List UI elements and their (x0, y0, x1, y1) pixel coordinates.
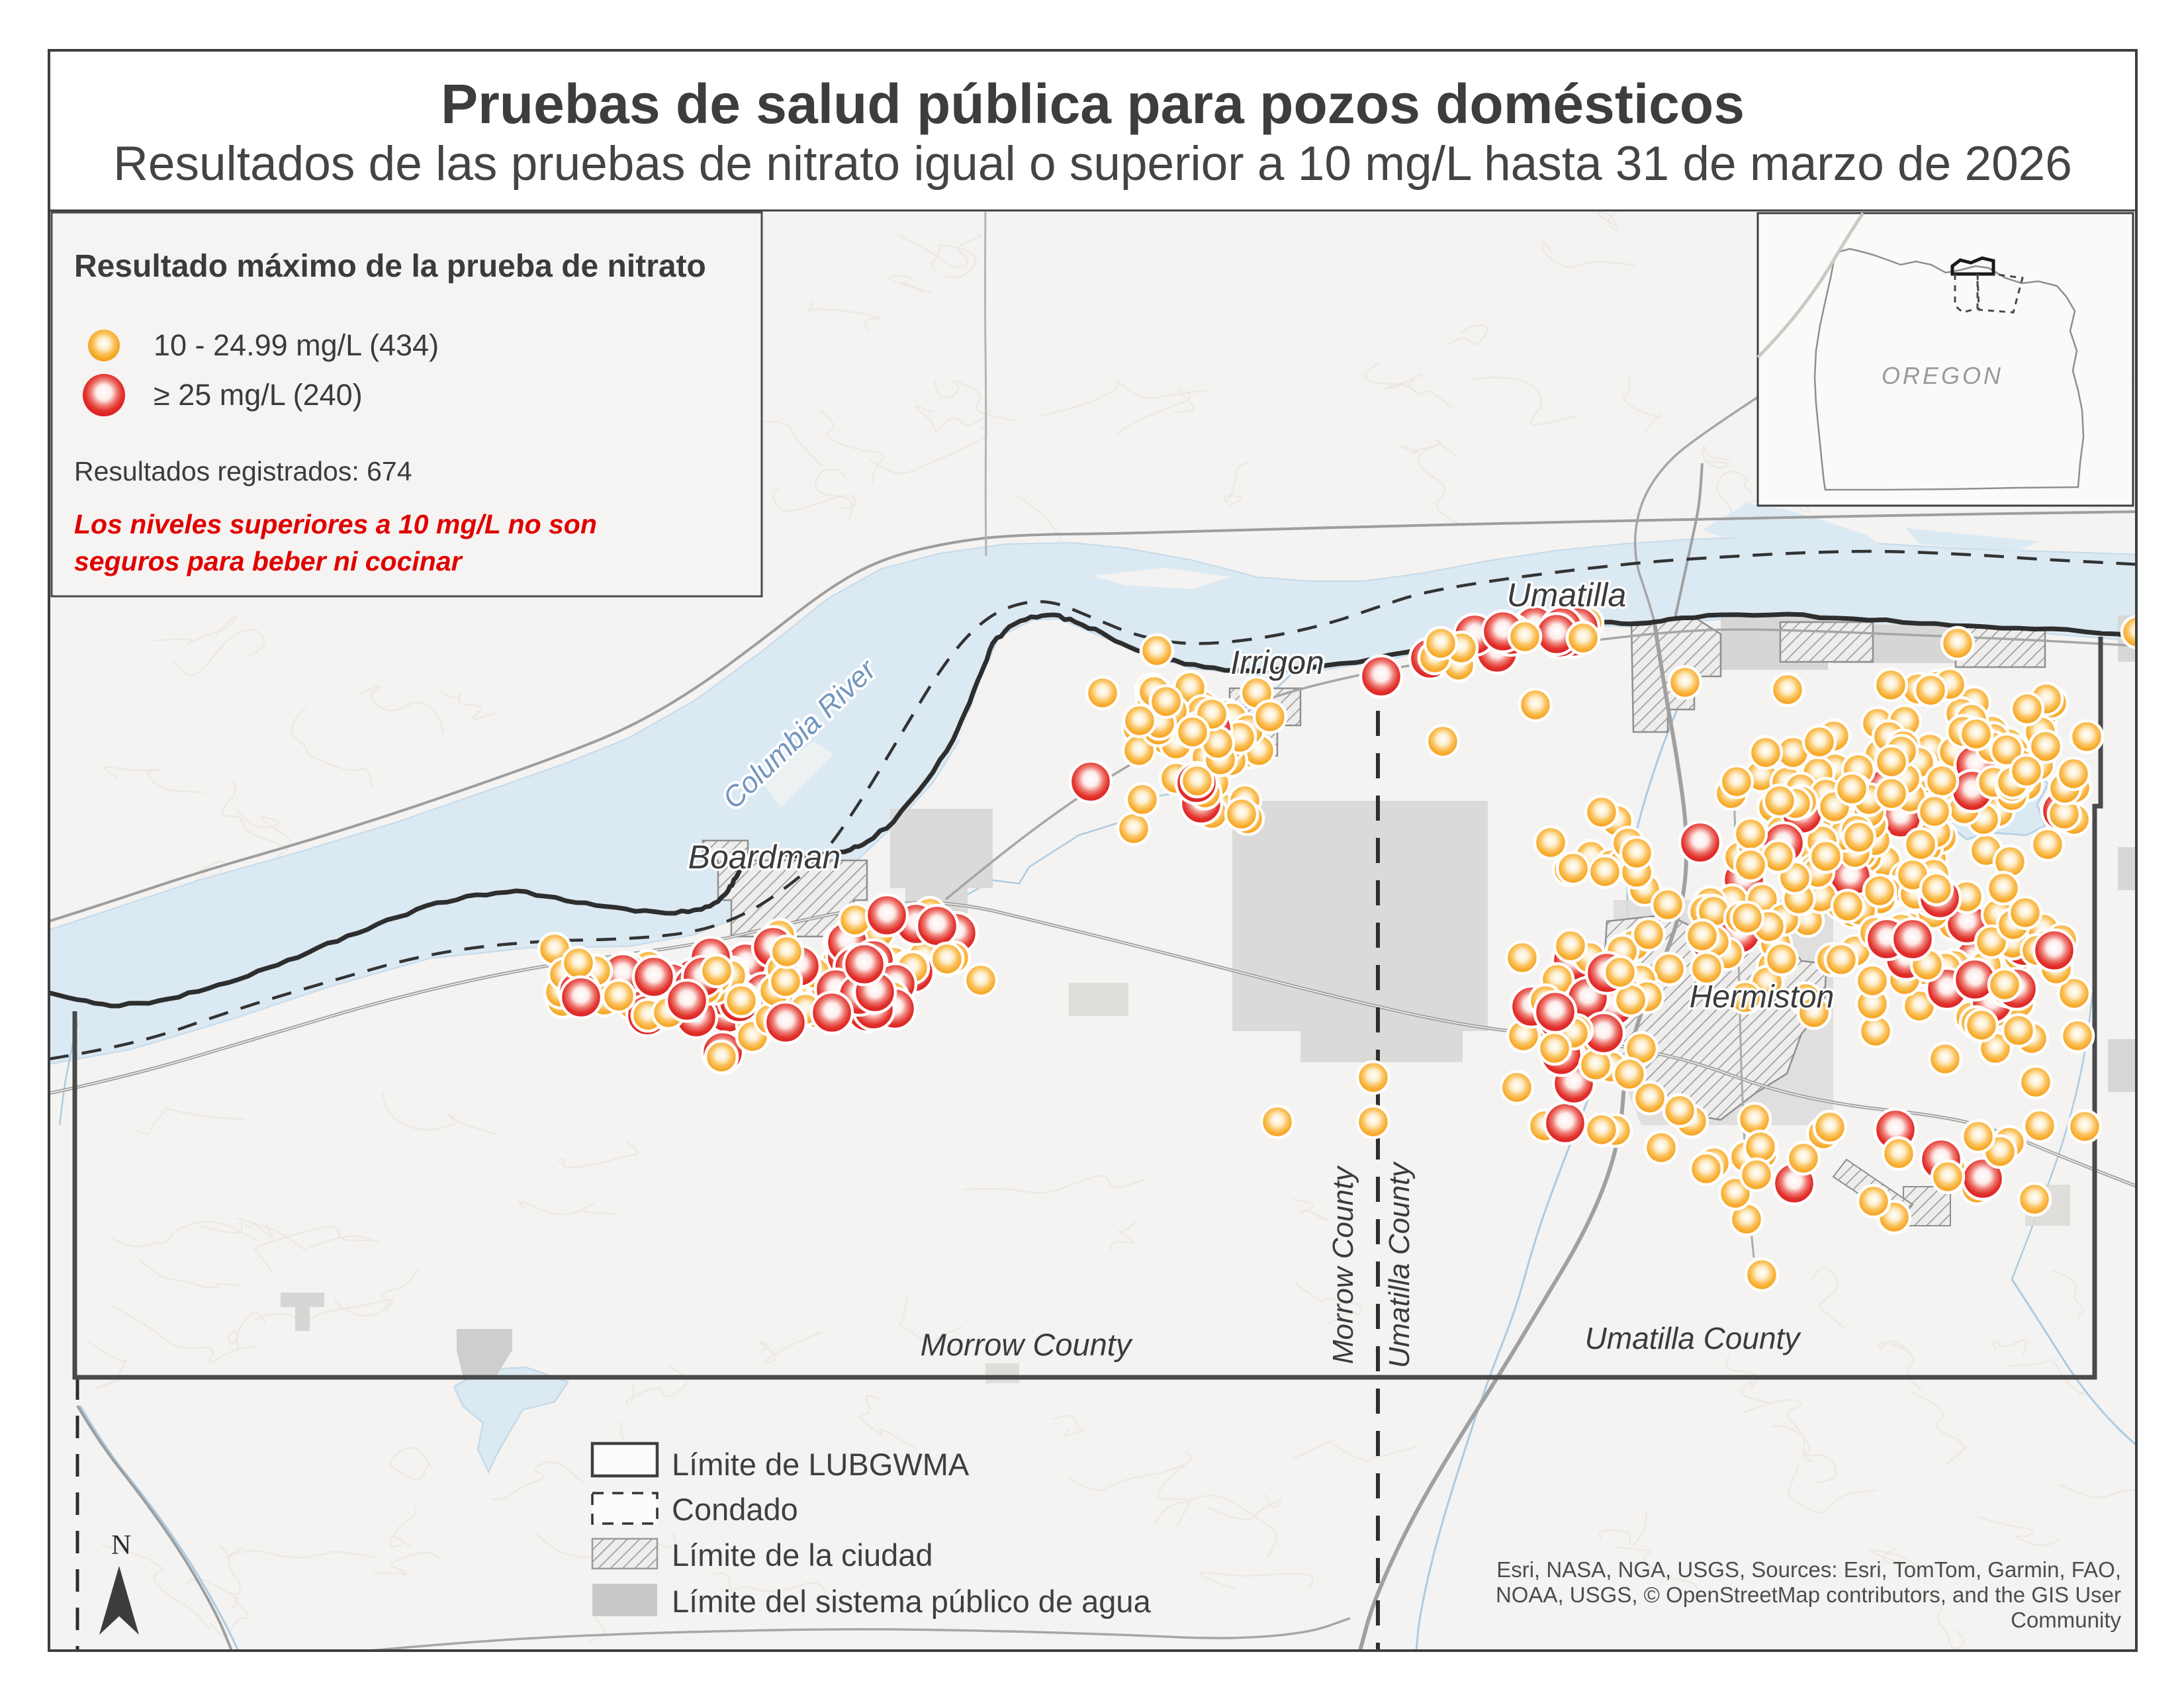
svg-text:Pruebas de salud pública para: Pruebas de salud pública para pozos domé… (441, 73, 1745, 135)
svg-text:Resultados registrados: 674: Resultados registrados: 674 (74, 456, 412, 486)
svg-text:Esri, NASA, NGA, USGS, Sources: Esri, NASA, NGA, USGS, Sources: Esri, To… (1496, 1557, 2121, 1582)
svg-text:Resultado máximo de la prueba: Resultado máximo de la prueba de nitrato (74, 249, 706, 284)
svg-text:seguros para beber ni cocinar: seguros para beber ni cocinar (74, 546, 463, 576)
svg-text:Morrow County: Morrow County (1327, 1165, 1359, 1364)
svg-text:Límite de la ciudad: Límite de la ciudad (672, 1537, 933, 1573)
svg-text:N: N (111, 1530, 131, 1561)
svg-text:Umatilla County: Umatilla County (1383, 1161, 1416, 1369)
svg-text:Umatilla County: Umatilla County (1585, 1321, 1802, 1355)
svg-text:≥ 25 mg/L (240): ≥ 25 mg/L (240) (154, 378, 363, 412)
svg-text:OREGON: OREGON (1882, 362, 2003, 389)
svg-text:Community: Community (2011, 1608, 2121, 1632)
svg-text:Irrigon: Irrigon (1230, 644, 1324, 681)
svg-text:Los niveles superiores a 10 mg: Los niveles superiores a 10 mg/L no son (74, 509, 597, 539)
svg-text:Límite de LUBGWMA: Límite de LUBGWMA (672, 1447, 970, 1482)
svg-text:Resultados de las pruebas de n: Resultados de las pruebas de nitrato igu… (113, 137, 2072, 191)
svg-text:Condado: Condado (672, 1492, 798, 1527)
svg-text:Morrow County: Morrow County (921, 1327, 1133, 1362)
svg-text:NOAA, USGS, © OpenStreetMap co: NOAA, USGS, © OpenStreetMap contributors… (1496, 1582, 2121, 1607)
svg-text:Umatilla: Umatilla (1507, 576, 1627, 614)
svg-text:Boardman: Boardman (688, 839, 841, 876)
svg-text:10 - 24.99 mg/L (434): 10 - 24.99 mg/L (434) (154, 328, 439, 362)
svg-text:Límite del sistema público de: Límite del sistema público de agua (672, 1584, 1152, 1619)
svg-text:Hermiston: Hermiston (1690, 980, 1835, 1015)
